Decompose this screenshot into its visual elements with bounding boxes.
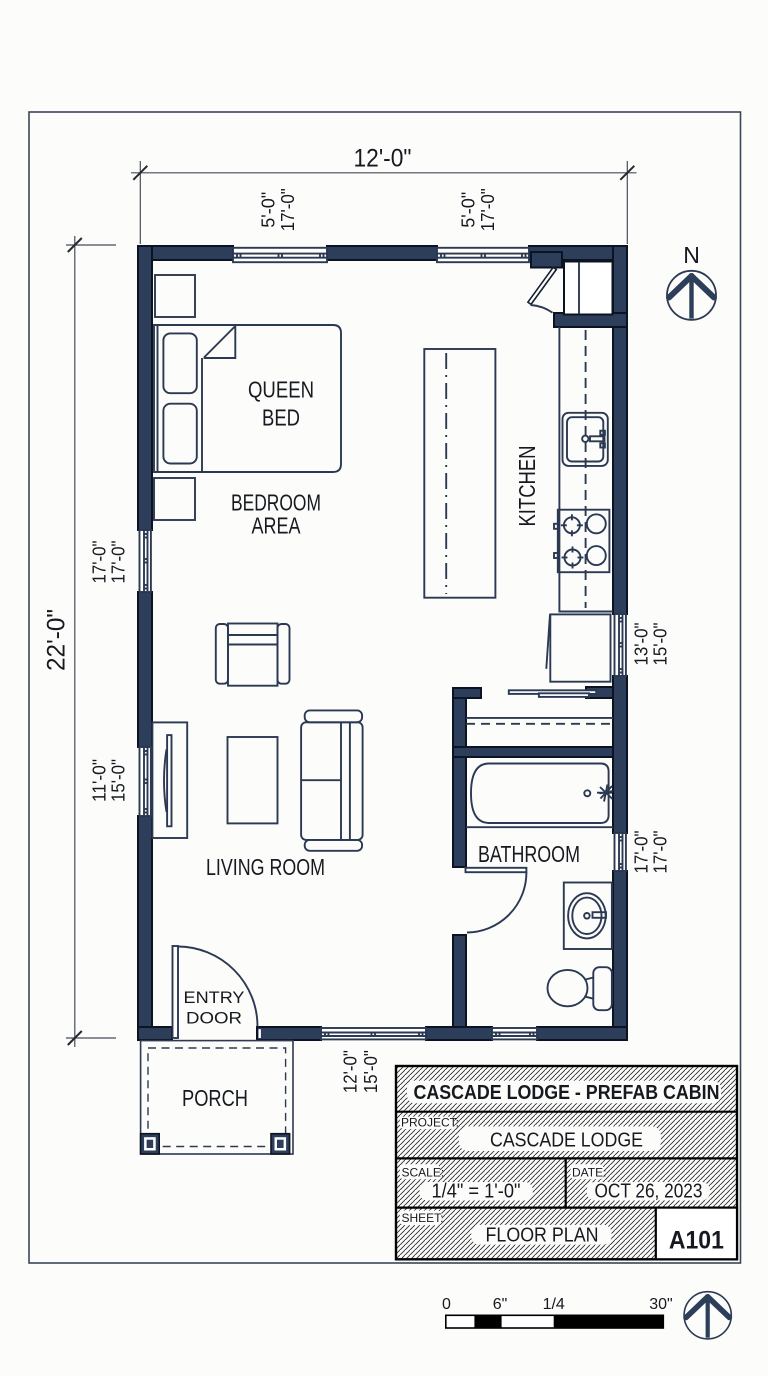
svg-text:5'-0": 5'-0" — [459, 192, 479, 228]
svg-text:0: 0 — [442, 1296, 451, 1313]
svg-text:17'-0": 17'-0" — [651, 831, 671, 874]
svg-text:A101: A101 — [669, 1227, 724, 1255]
svg-text:12'-0": 12'-0" — [340, 1050, 360, 1093]
svg-text:17'-0": 17'-0" — [478, 188, 498, 231]
svg-text:15'-0": 15'-0" — [108, 759, 128, 802]
svg-text:1/4" = 1'-0": 1/4" = 1'-0" — [432, 1179, 521, 1202]
svg-text:CASCADE LODGE - PREFAB CABIN: CASCADE LODGE - PREFAB CABIN — [414, 1081, 720, 1104]
svg-text:15'-0": 15'-0" — [651, 623, 671, 666]
svg-text:LIVING ROOM: LIVING ROOM — [206, 854, 325, 880]
svg-text:1/4: 1/4 — [543, 1296, 565, 1313]
svg-text:FLOOR PLAN: FLOOR PLAN — [486, 1224, 599, 1247]
svg-text:ENTRY: ENTRY — [184, 988, 245, 1007]
svg-text:PROJECT:: PROJECT: — [401, 1116, 459, 1130]
svg-text:DOOR: DOOR — [186, 1009, 242, 1028]
svg-text:DATE:: DATE: — [572, 1165, 606, 1179]
svg-text:30": 30" — [649, 1296, 672, 1313]
svg-text:CASCADE LODGE: CASCADE LODGE — [490, 1129, 643, 1152]
svg-text:17'-0": 17'-0" — [89, 541, 109, 584]
svg-text:12'-0": 12'-0" — [354, 145, 412, 173]
svg-text:13'-0": 13'-0" — [632, 623, 652, 666]
svg-text:17'-0": 17'-0" — [278, 188, 298, 231]
svg-text:KITCHEN: KITCHEN — [514, 446, 540, 527]
svg-text:15'-0": 15'-0" — [361, 1050, 381, 1093]
svg-text:PORCH: PORCH — [182, 1085, 248, 1111]
svg-text:N: N — [683, 242, 700, 268]
svg-text:5'-0": 5'-0" — [259, 192, 279, 228]
svg-text:BED: BED — [262, 405, 300, 431]
svg-text:AREA: AREA — [252, 513, 301, 539]
svg-text:SHEET:: SHEET: — [402, 1211, 444, 1225]
svg-text:17'-0": 17'-0" — [632, 831, 652, 874]
svg-text:17'-0": 17'-0" — [108, 541, 128, 584]
svg-text:BATHROOM: BATHROOM — [478, 841, 580, 867]
svg-text:11'-0": 11'-0" — [89, 759, 109, 802]
svg-text:QUEEN: QUEEN — [248, 377, 314, 403]
svg-text:6": 6" — [493, 1296, 508, 1313]
svg-text:22'-0": 22'-0" — [43, 609, 71, 671]
svg-text:OCT 26, 2023: OCT 26, 2023 — [595, 1179, 703, 1202]
svg-text:SCALE:: SCALE: — [402, 1165, 445, 1179]
